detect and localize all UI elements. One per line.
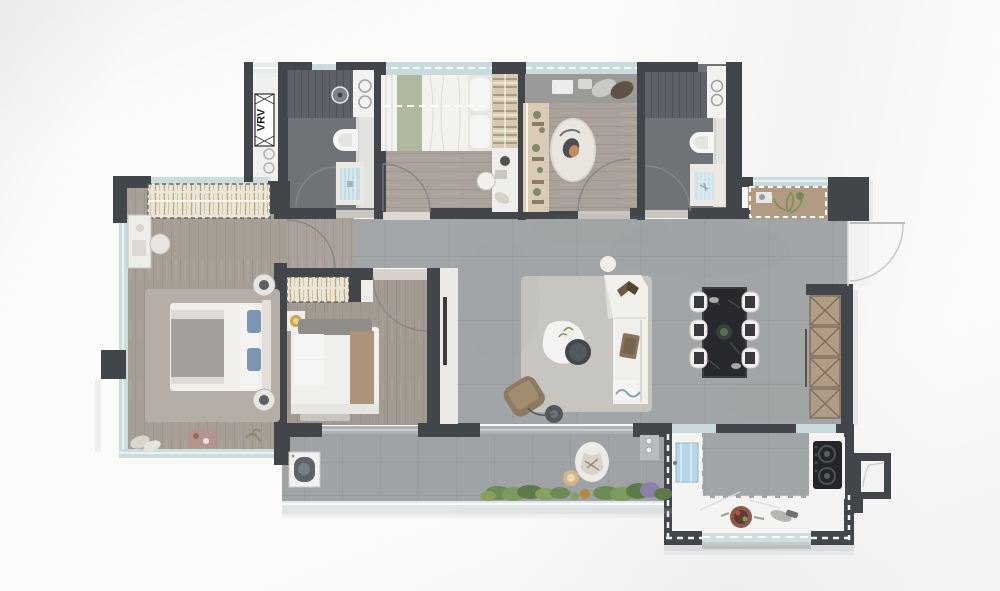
svg-text:VRV: VRV: [256, 108, 268, 131]
